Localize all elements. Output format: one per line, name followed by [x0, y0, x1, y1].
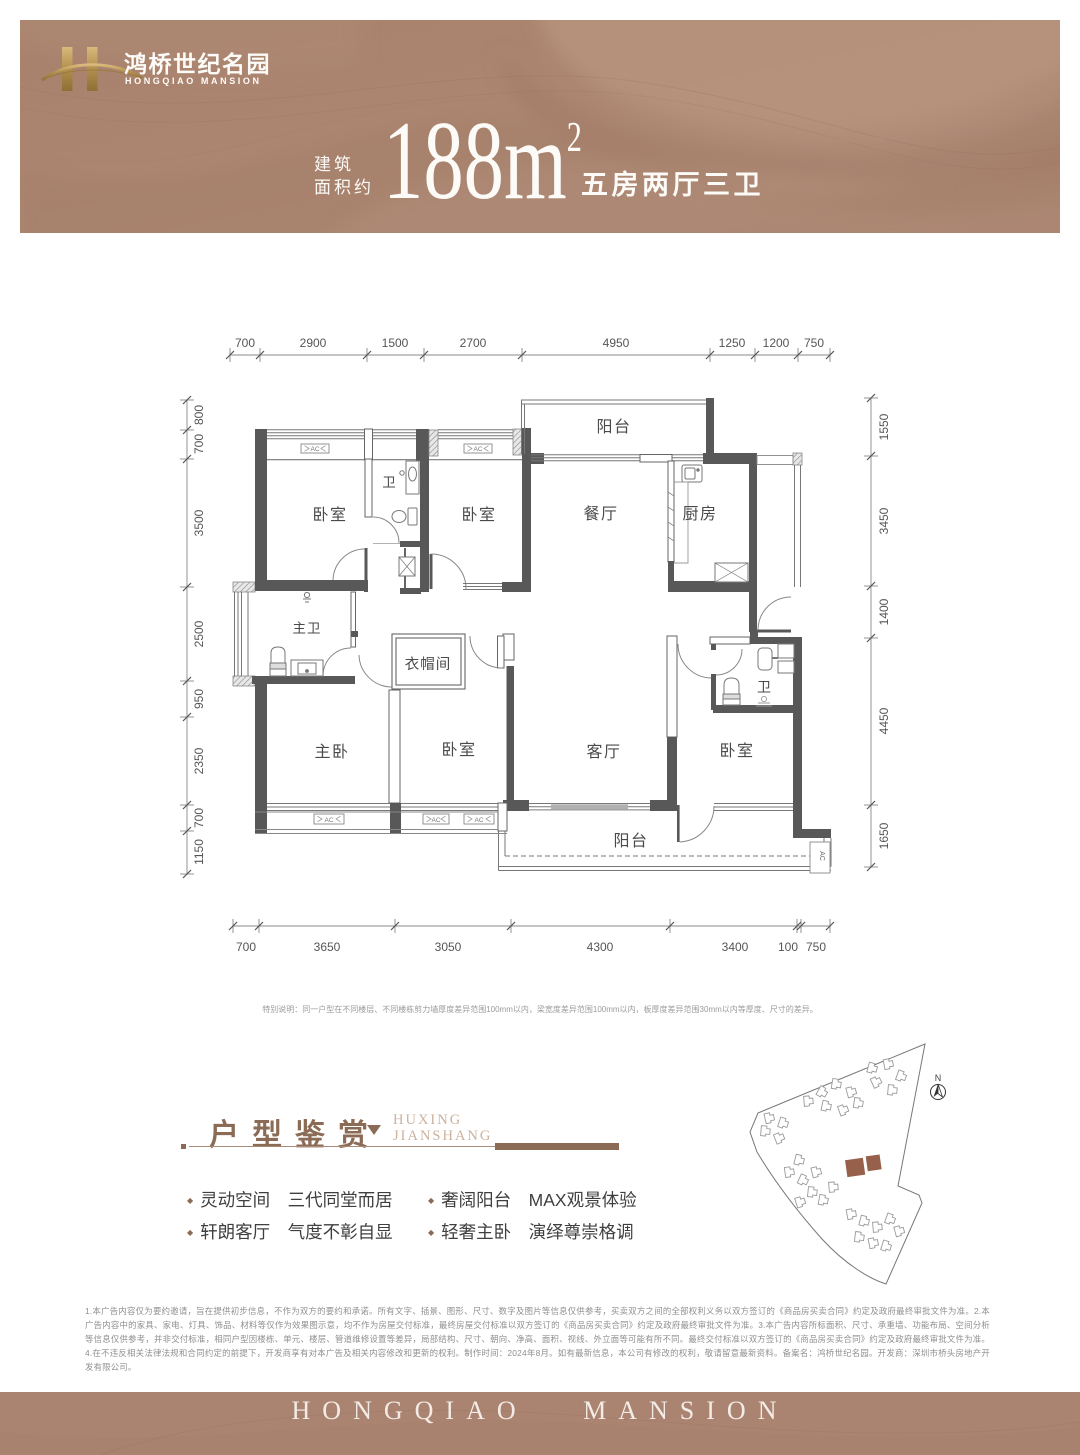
svg-text:4300: 4300 — [587, 940, 614, 954]
svg-text:AC: AC — [431, 817, 440, 824]
svg-text:AC: AC — [310, 446, 319, 453]
svg-text:1200: 1200 — [763, 336, 790, 350]
svg-text:客厅: 客厅 — [586, 743, 621, 761]
svg-text:700: 700 — [236, 940, 256, 954]
svg-text:2700: 2700 — [460, 336, 487, 350]
svg-text:主卫: 主卫 — [293, 621, 322, 636]
svg-text:950: 950 — [192, 689, 206, 709]
svg-text:卧室: 卧室 — [719, 742, 754, 760]
svg-text:主卧: 主卧 — [314, 743, 349, 761]
svg-text:卫: 卫 — [382, 475, 396, 490]
svg-text:AC: AC — [473, 446, 482, 453]
svg-text:1550: 1550 — [877, 413, 891, 440]
svg-text:卫: 卫 — [757, 679, 771, 695]
svg-text:750: 750 — [804, 336, 824, 350]
svg-text:3500: 3500 — [192, 509, 206, 536]
svg-text:3050: 3050 — [435, 940, 462, 954]
svg-text:700: 700 — [235, 336, 255, 350]
svg-text:1650: 1650 — [877, 822, 891, 849]
svg-text:3450: 3450 — [877, 507, 891, 534]
svg-text:4950: 4950 — [603, 336, 630, 350]
svg-text:2350: 2350 — [192, 747, 206, 774]
svg-text:厨房: 厨房 — [682, 505, 717, 523]
svg-text:卧室: 卧室 — [461, 506, 496, 524]
svg-text:3650: 3650 — [314, 940, 341, 954]
svg-text:AC: AC — [324, 817, 333, 824]
svg-text:AC: AC — [818, 851, 825, 861]
svg-text:卧室: 卧室 — [312, 506, 347, 524]
svg-text:100: 100 — [778, 940, 798, 954]
svg-text:衣帽间: 衣帽间 — [405, 656, 452, 673]
svg-text:700: 700 — [192, 808, 206, 828]
svg-text:卧室: 卧室 — [441, 741, 476, 759]
svg-text:N: N — [935, 1073, 942, 1083]
svg-text:2500: 2500 — [192, 620, 206, 647]
svg-text:750: 750 — [806, 940, 826, 954]
svg-text:1400: 1400 — [877, 598, 891, 625]
svg-text:3400: 3400 — [722, 940, 749, 954]
svg-text:AC: AC — [474, 817, 483, 824]
svg-text:800: 800 — [192, 405, 206, 425]
svg-text:700: 700 — [192, 434, 206, 454]
svg-text:1150: 1150 — [192, 839, 206, 865]
svg-text:阳台: 阳台 — [596, 418, 631, 436]
svg-text:2900: 2900 — [300, 336, 327, 350]
svg-text:1500: 1500 — [382, 336, 409, 350]
svg-text:1250: 1250 — [719, 336, 746, 350]
svg-text:餐厅: 餐厅 — [583, 505, 618, 523]
svg-text:4450: 4450 — [877, 707, 891, 734]
svg-text:阳台: 阳台 — [613, 832, 648, 850]
